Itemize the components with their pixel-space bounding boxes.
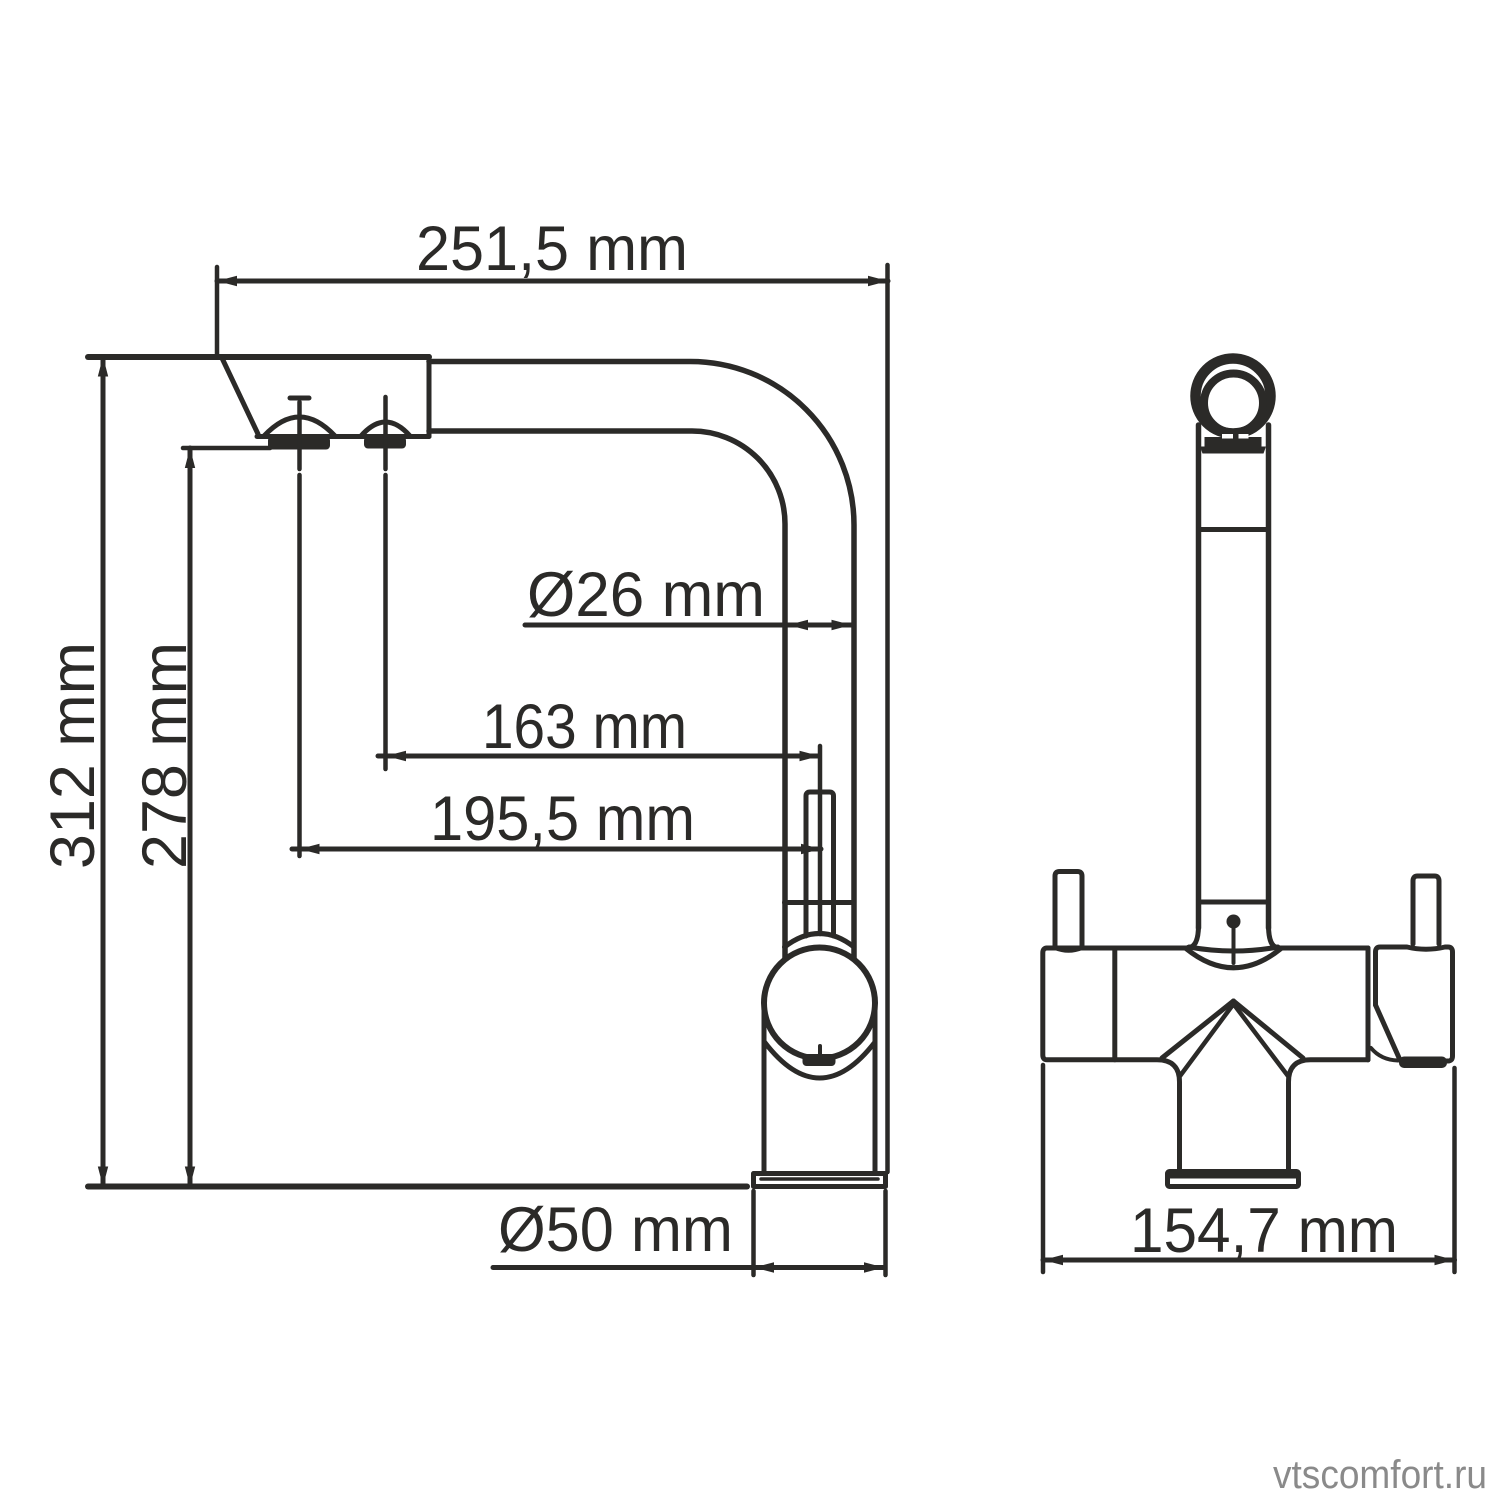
svg-text:312 mm: 312 mm [38,642,108,869]
svg-text:Ø50 mm: Ø50 mm [498,1195,733,1265]
svg-text:163 mm: 163 mm [482,692,687,762]
svg-text:Ø26 mm: Ø26 mm [527,560,765,630]
svg-text:251,5 mm: 251,5 mm [416,214,688,284]
svg-text:154,7 mm: 154,7 mm [1130,1196,1398,1266]
svg-text:195,5 mm: 195,5 mm [430,784,695,854]
svg-text:vtscomfort.ru: vtscomfort.ru [1273,1453,1487,1497]
